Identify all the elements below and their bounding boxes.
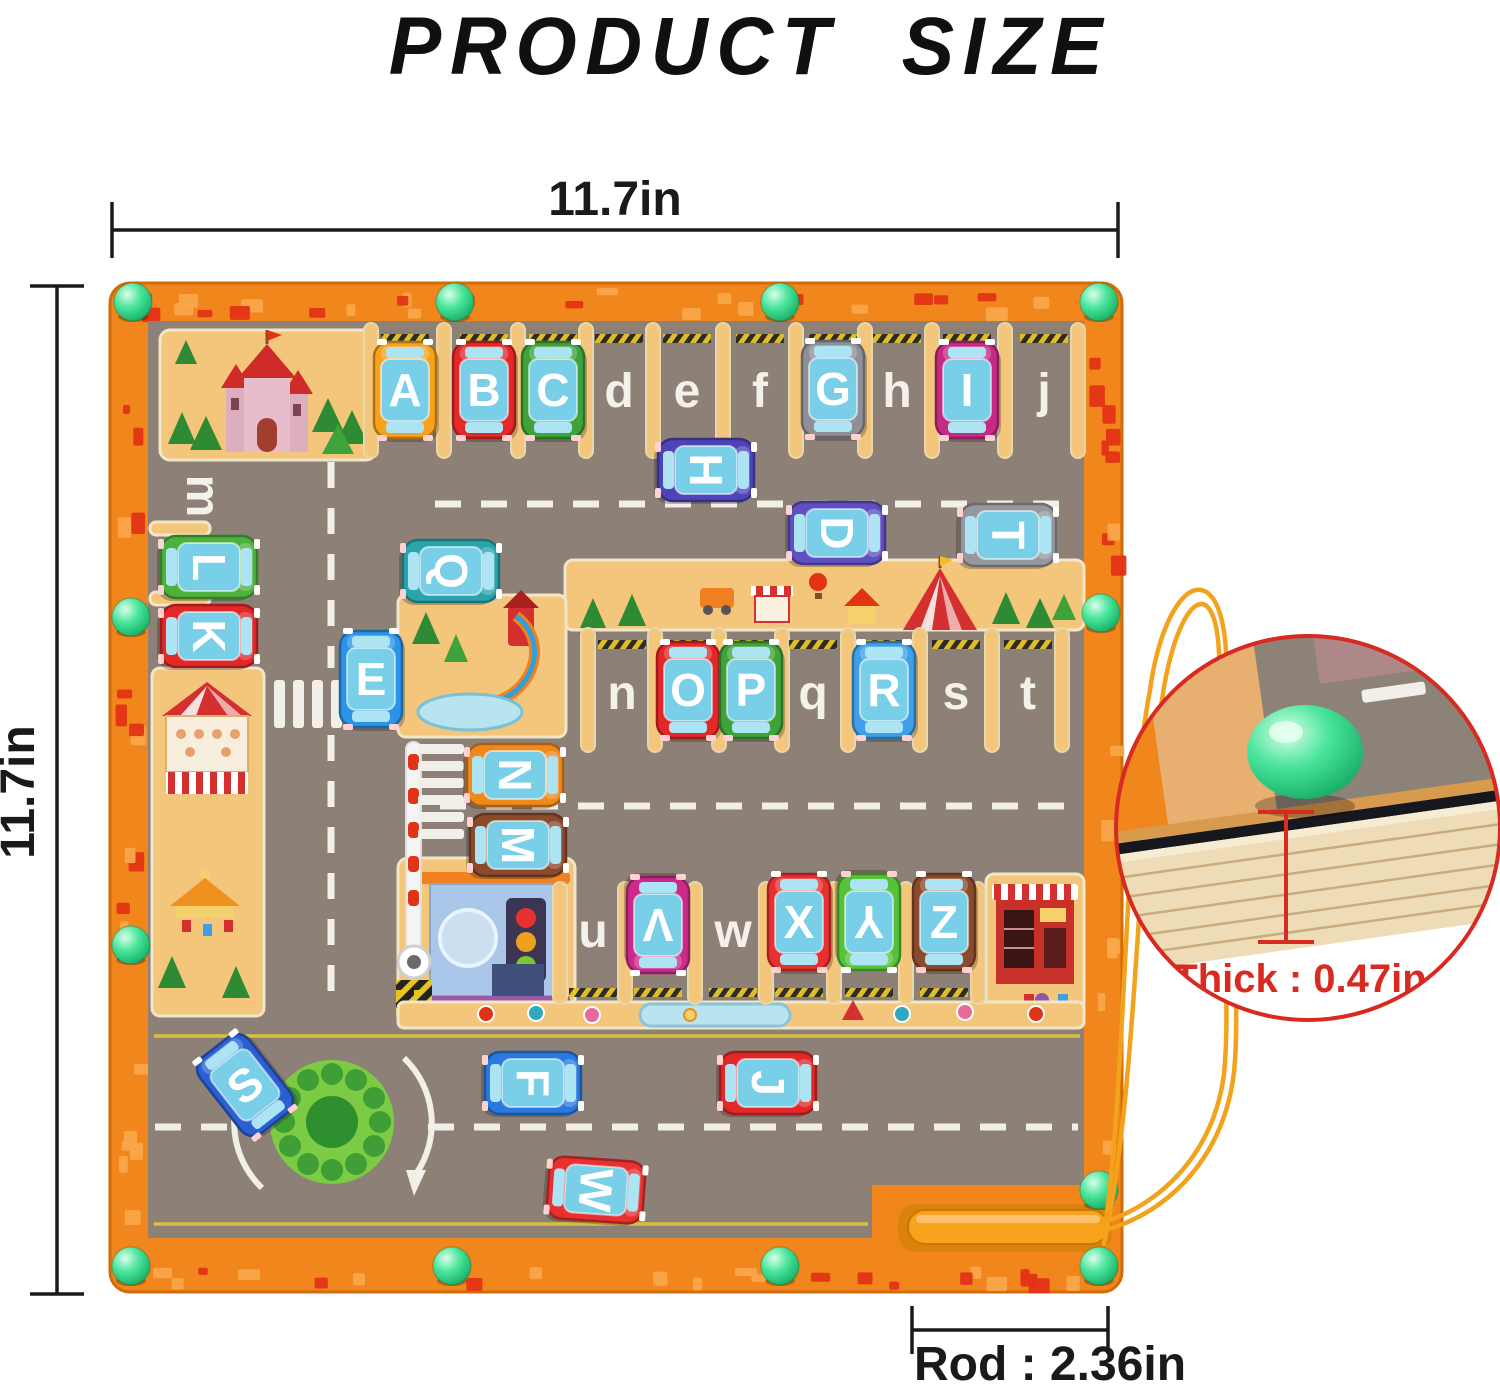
- slot-letter-u: u: [578, 905, 607, 958]
- green-ball: [433, 1247, 471, 1285]
- letter-car-Q: Q: [399, 540, 502, 605]
- car-letter-label: X: [784, 896, 815, 948]
- car-letter-label: B: [467, 364, 500, 416]
- parking-divider: [1055, 628, 1069, 752]
- car-letter-label: J: [742, 1070, 794, 1096]
- hazard-strip: [663, 334, 711, 343]
- letter-car-B: B: [453, 339, 518, 442]
- slot-letter-f: f: [752, 365, 769, 418]
- letter-car-X: X: [768, 871, 833, 974]
- green-ball: [1080, 283, 1118, 321]
- letter-car-G: G: [802, 338, 867, 441]
- width-label: 11.7in: [548, 173, 681, 226]
- car-letter-label: N: [489, 758, 541, 791]
- height-dimension: 11.7in: [0, 286, 84, 1294]
- car-letter-label: H: [680, 453, 732, 486]
- hazard-strip: [1020, 334, 1068, 343]
- green-ball: [436, 283, 474, 321]
- green-ball: [112, 926, 150, 964]
- hazard-strip: [920, 988, 968, 997]
- green-ball: [1082, 594, 1120, 632]
- rod-dimension: Rod : 2.36in: [912, 1306, 1186, 1385]
- magnetic-rod: [898, 1204, 1112, 1252]
- letter-car-M: M: [466, 814, 569, 879]
- letter-car-D: D: [785, 502, 888, 567]
- car-letter-label: E: [356, 653, 387, 705]
- car-letter-label: F: [507, 1069, 559, 1097]
- slot-letter-h: h: [882, 365, 911, 418]
- slot-letter-w: w: [713, 905, 752, 958]
- car-letter-label: P: [736, 664, 767, 716]
- car-letter-label: V: [642, 899, 673, 951]
- letter-car-A: A: [374, 339, 439, 442]
- letter-car-R: R: [853, 639, 918, 742]
- slot-letter-j: j: [1036, 365, 1050, 418]
- slot-letter-m: m: [176, 475, 229, 518]
- car-letter-label: Q: [425, 553, 477, 589]
- letter-car-F: F: [481, 1052, 584, 1117]
- hazard-strip: [845, 988, 893, 997]
- car-letter-label: Z: [930, 896, 958, 948]
- letter-car-Y: Y: [835, 870, 900, 973]
- parking-divider: [646, 323, 660, 458]
- green-ball: [761, 283, 799, 321]
- green-ball: [112, 598, 150, 636]
- hazard-strip: [709, 988, 757, 997]
- car-letter-label: K: [183, 619, 235, 652]
- hazard-strip: [598, 640, 646, 649]
- barrier-pole: [406, 742, 421, 954]
- slot-letter-e: e: [674, 365, 701, 418]
- letter-car-V: V: [624, 873, 689, 976]
- hazard-strip: [1004, 640, 1052, 649]
- hazard-strip: [736, 334, 784, 343]
- parking-divider: [1071, 323, 1085, 458]
- slot-letter-t: t: [1020, 667, 1036, 720]
- car-letter-label: M: [492, 826, 544, 864]
- letter-car-J: J: [716, 1052, 819, 1117]
- car-letter-label: T: [982, 521, 1034, 549]
- parking-divider: [437, 323, 451, 458]
- width-dimension: 11.7in: [112, 173, 1118, 258]
- letter-car-I: I: [936, 339, 1001, 442]
- letter-car-W: W: [542, 1155, 649, 1227]
- slot-letter-q: q: [798, 667, 827, 720]
- letter-car-N: N: [463, 744, 566, 809]
- castle-scene: [160, 330, 376, 460]
- product-size-infographic: PRODUCT SIZE: [0, 0, 1500, 1385]
- car-letter-label: D: [811, 516, 863, 549]
- carnival-strip: [152, 668, 264, 1016]
- hazard-strip: [595, 334, 643, 343]
- green-ball: [114, 283, 152, 321]
- letter-car-E: E: [340, 628, 405, 731]
- hazard-strip: [932, 640, 980, 649]
- parking-divider: [985, 628, 999, 752]
- hazard-strip: [789, 640, 837, 649]
- parking-divider: [581, 628, 595, 752]
- height-label: 11.7in: [0, 725, 45, 858]
- letter-car-L: L: [157, 536, 260, 601]
- car-letter-label: I: [961, 364, 974, 416]
- letter-car-K: K: [157, 605, 260, 670]
- hazard-strip: [569, 988, 617, 997]
- parking-divider: [553, 882, 567, 1004]
- green-ball: [1080, 1247, 1118, 1285]
- car-letter-label: R: [867, 664, 900, 716]
- car-letter-label: O: [670, 664, 706, 716]
- car-letter-label: G: [815, 363, 851, 415]
- car-letter-label: C: [536, 364, 569, 416]
- hazard-strip: [634, 988, 682, 997]
- letter-car-O: O: [657, 639, 722, 742]
- slot-letter-d: d: [604, 365, 633, 418]
- green-ball: [112, 1247, 150, 1285]
- green-ball: [761, 1247, 799, 1285]
- cafe-scene: [986, 874, 1084, 1012]
- letter-car-T: T: [956, 504, 1059, 569]
- playground-pool-scene: [398, 590, 566, 737]
- hazard-strip: [775, 988, 823, 997]
- page-title: PRODUCT SIZE: [30, 0, 1470, 94]
- letter-car-P: P: [720, 639, 785, 742]
- slot-letter-s: s: [943, 667, 970, 720]
- letter-car-H: H: [654, 439, 757, 504]
- letter-car-C: C: [522, 339, 587, 442]
- rod-label: Rod : 2.36in: [914, 1338, 1186, 1385]
- inset-green-ball: [1247, 705, 1363, 799]
- slot-letter-n: n: [607, 667, 636, 720]
- car-letter-label: W: [569, 1167, 624, 1215]
- product-board-illustration: 11.7in 11.7in: [0, 0, 1500, 1385]
- car-letter-label: L: [183, 553, 235, 581]
- hazard-strip: [873, 334, 921, 343]
- letter-car-Z: Z: [913, 871, 978, 974]
- car-letter-label: Y: [854, 896, 885, 948]
- car-letter-label: A: [388, 364, 421, 416]
